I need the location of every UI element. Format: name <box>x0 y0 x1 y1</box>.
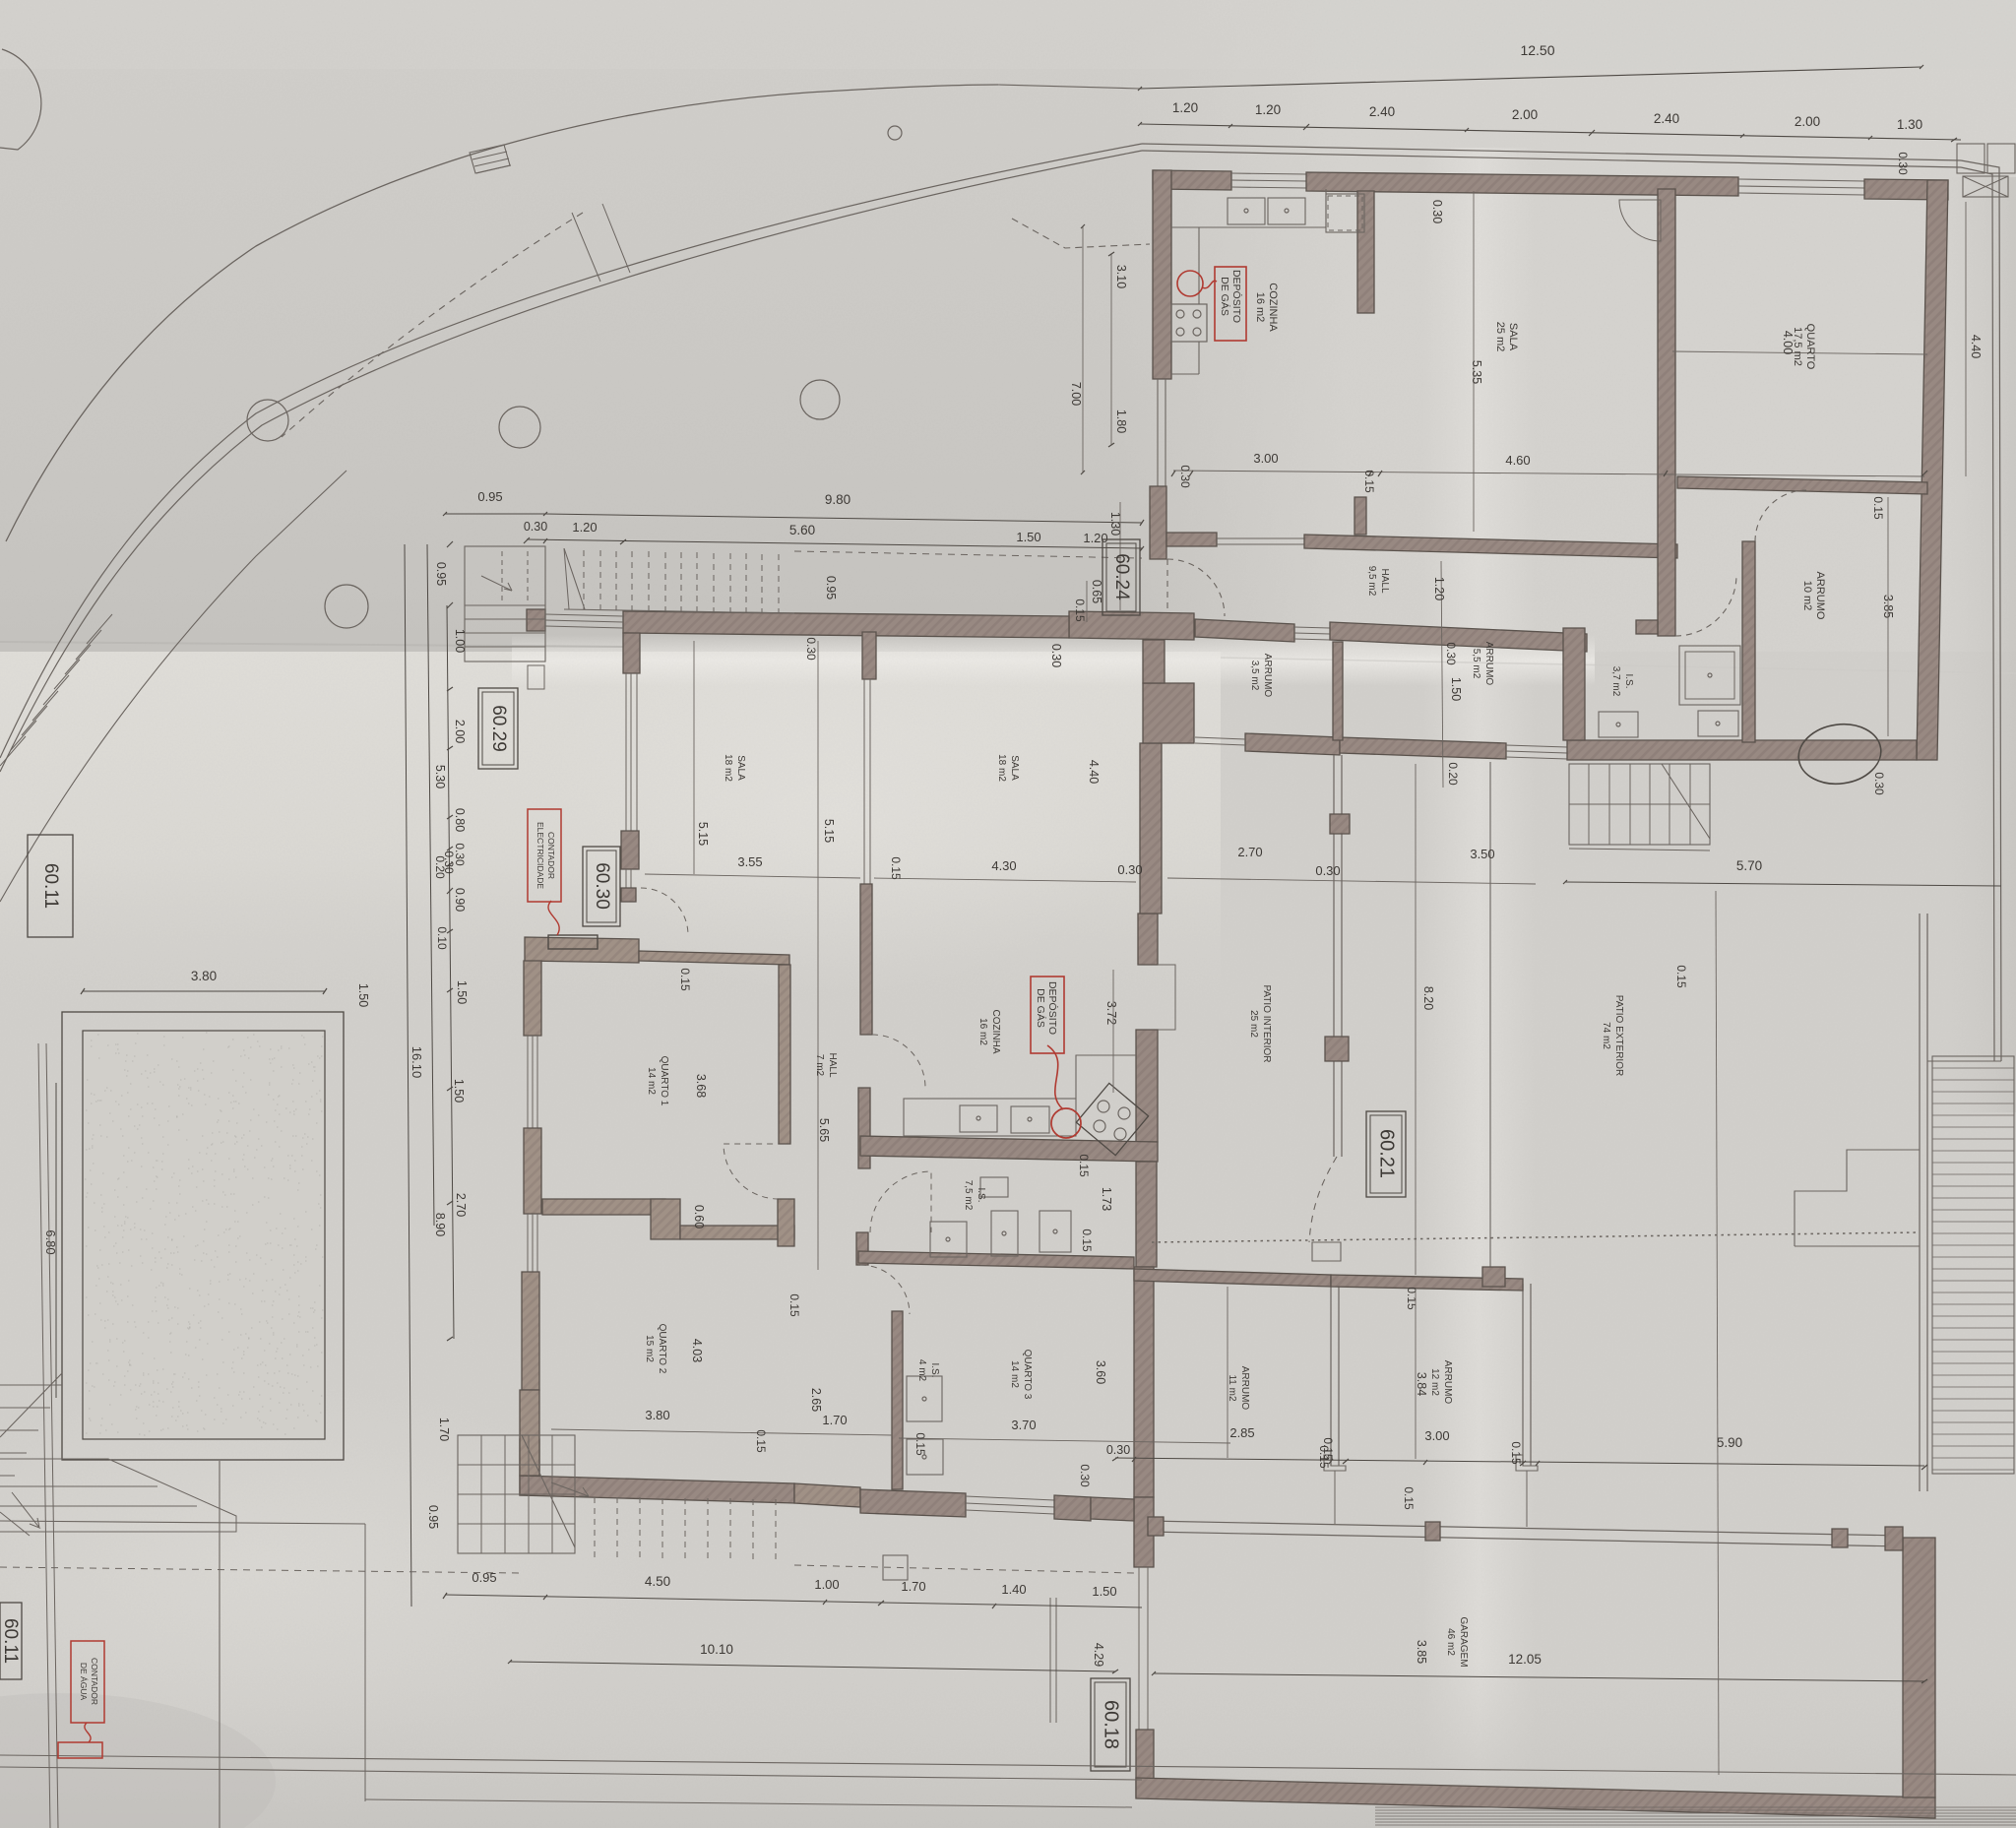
svg-text:2.00: 2.00 <box>453 720 467 743</box>
svg-text:10.10: 10.10 <box>700 1642 733 1657</box>
svg-text:0.95: 0.95 <box>477 489 502 504</box>
svg-text:0.30: 0.30 <box>1106 1443 1130 1457</box>
svg-text:9.80: 9.80 <box>825 492 850 507</box>
svg-text:4.29: 4.29 <box>1092 1643 1105 1667</box>
svg-text:1.20: 1.20 <box>1432 577 1446 600</box>
svg-text:8.90: 8.90 <box>433 1213 447 1236</box>
svg-text:1.70: 1.70 <box>822 1413 847 1427</box>
svg-text:5.65: 5.65 <box>817 1118 831 1142</box>
svg-text:2.65: 2.65 <box>809 1388 823 1412</box>
svg-text:2.00: 2.00 <box>1512 107 1538 122</box>
svg-text:0.15: 0.15 <box>754 1429 768 1453</box>
svg-text:0.95: 0.95 <box>434 562 448 586</box>
svg-text:0.90: 0.90 <box>453 888 467 912</box>
svg-text:3.80: 3.80 <box>645 1408 669 1422</box>
svg-text:0.30: 0.30 <box>1430 200 1444 223</box>
svg-text:3.60: 3.60 <box>1094 1360 1107 1384</box>
svg-text:0.30: 0.30 <box>1078 1464 1092 1487</box>
svg-text:60.30: 60.30 <box>592 862 612 910</box>
svg-text:0.15: 0.15 <box>1362 470 1376 493</box>
svg-text:1.73: 1.73 <box>1100 1187 1113 1211</box>
svg-text:3.80: 3.80 <box>191 969 217 983</box>
svg-text:0.15: 0.15 <box>1077 1154 1091 1177</box>
svg-text:5.15: 5.15 <box>822 819 836 843</box>
svg-text:1.50: 1.50 <box>452 1079 466 1103</box>
svg-text:1.30: 1.30 <box>1897 117 1922 132</box>
svg-text:3.55: 3.55 <box>737 854 762 869</box>
svg-text:60.29: 60.29 <box>488 705 509 752</box>
svg-text:0.95: 0.95 <box>426 1505 440 1529</box>
svg-text:8.20: 8.20 <box>1421 986 1435 1010</box>
svg-text:4.60: 4.60 <box>1505 453 1530 468</box>
svg-text:0.30: 0.30 <box>1117 862 1142 877</box>
svg-text:DEPÓSITODE GÁS: DEPÓSITODE GÁS <box>1219 270 1243 323</box>
svg-text:0.15: 0.15 <box>1674 965 1688 988</box>
svg-text:5.70: 5.70 <box>1736 858 1762 873</box>
svg-text:0.60: 0.60 <box>692 1205 706 1229</box>
svg-text:4.00: 4.00 <box>1781 331 1795 354</box>
svg-text:1.50: 1.50 <box>1092 1584 1116 1599</box>
svg-text:0.15: 0.15 <box>889 856 903 880</box>
svg-text:5.15: 5.15 <box>696 822 710 846</box>
svg-text:16.10: 16.10 <box>409 1046 424 1079</box>
svg-text:1.50: 1.50 <box>1016 530 1040 544</box>
svg-text:3.85: 3.85 <box>1415 1640 1428 1664</box>
svg-text:1.50: 1.50 <box>455 980 469 1004</box>
svg-text:2.70: 2.70 <box>1237 845 1262 859</box>
svg-text:1.50: 1.50 <box>1449 677 1463 701</box>
svg-text:1.70: 1.70 <box>437 1418 451 1441</box>
svg-text:0.15: 0.15 <box>913 1432 927 1456</box>
svg-text:4.30: 4.30 <box>991 858 1016 873</box>
svg-text:4.50: 4.50 <box>645 1574 670 1589</box>
svg-text:0.30: 0.30 <box>442 851 456 874</box>
svg-text:3.70: 3.70 <box>1011 1418 1036 1432</box>
svg-text:4.03: 4.03 <box>690 1339 704 1362</box>
svg-text:0.15: 0.15 <box>1317 1445 1331 1469</box>
svg-text:0.30: 0.30 <box>1178 465 1192 488</box>
svg-text:3.68: 3.68 <box>694 1074 708 1098</box>
svg-text:12.50: 12.50 <box>1520 42 1554 58</box>
svg-text:1.20: 1.20 <box>1083 531 1107 545</box>
svg-text:2.00: 2.00 <box>1795 114 1820 129</box>
svg-text:1.70: 1.70 <box>901 1579 925 1594</box>
svg-text:1.20: 1.20 <box>1255 102 1281 117</box>
svg-text:2.40: 2.40 <box>1369 104 1395 119</box>
svg-text:60.11: 60.11 <box>40 863 61 909</box>
svg-text:2.70: 2.70 <box>454 1193 468 1217</box>
svg-text:0.95: 0.95 <box>824 576 838 599</box>
svg-text:0.15: 0.15 <box>1405 1287 1418 1310</box>
svg-text:0.30: 0.30 <box>1444 642 1458 665</box>
svg-text:3.50: 3.50 <box>1470 847 1494 861</box>
svg-text:3.10: 3.10 <box>1114 265 1128 288</box>
svg-text:0.15: 0.15 <box>1073 599 1087 622</box>
svg-text:0.80: 0.80 <box>453 808 467 832</box>
svg-text:3.00: 3.00 <box>1253 451 1278 466</box>
svg-text:SALA25 m2: SALA25 m2 <box>1494 322 1519 352</box>
svg-text:1.50: 1.50 <box>356 983 370 1007</box>
svg-text:0.20: 0.20 <box>1446 762 1460 786</box>
svg-text:4.40: 4.40 <box>1969 335 1983 358</box>
svg-text:0.15: 0.15 <box>1871 496 1885 520</box>
svg-text:5.35: 5.35 <box>1470 360 1483 384</box>
svg-text:60.21: 60.21 <box>1376 1129 1398 1178</box>
svg-text:CONTADORDE ÁGUA: CONTADORDE ÁGUA <box>79 1658 99 1705</box>
svg-text:60.24: 60.24 <box>1111 553 1132 600</box>
svg-text:3.84: 3.84 <box>1415 1372 1428 1396</box>
svg-text:0.15: 0.15 <box>1509 1441 1523 1465</box>
svg-text:1.00: 1.00 <box>453 629 467 653</box>
svg-text:0.30: 0.30 <box>1872 772 1886 795</box>
svg-text:6.80: 6.80 <box>43 1229 58 1254</box>
svg-text:3.72: 3.72 <box>1104 1001 1118 1025</box>
svg-text:0.30: 0.30 <box>804 637 818 661</box>
svg-text:12.05: 12.05 <box>1508 1652 1542 1667</box>
svg-text:5.60: 5.60 <box>789 523 815 537</box>
svg-text:3.00: 3.00 <box>1424 1428 1449 1443</box>
svg-text:0.15: 0.15 <box>787 1293 801 1317</box>
svg-text:60.18: 60.18 <box>1101 1700 1122 1749</box>
svg-text:4.40: 4.40 <box>1087 760 1101 784</box>
svg-text:0.95: 0.95 <box>472 1570 496 1585</box>
svg-text:0.65: 0.65 <box>1090 580 1103 603</box>
svg-text:0.30: 0.30 <box>1315 863 1340 878</box>
svg-text:2.85: 2.85 <box>1229 1425 1254 1440</box>
svg-text:5.90: 5.90 <box>1717 1435 1742 1450</box>
svg-text:DEPÓSITODE GÁS: DEPÓSITODE GÁS <box>1035 981 1059 1035</box>
svg-text:5.30: 5.30 <box>433 765 447 788</box>
svg-text:0.15: 0.15 <box>678 968 692 991</box>
svg-text:1.40: 1.40 <box>1001 1582 1026 1597</box>
svg-text:0.15: 0.15 <box>1080 1229 1094 1252</box>
svg-text:1.20: 1.20 <box>572 520 597 535</box>
svg-text:60.11: 60.11 <box>0 1618 21 1664</box>
svg-text:1.80: 1.80 <box>1114 410 1128 433</box>
svg-text:0.30: 0.30 <box>1049 644 1063 667</box>
svg-text:0.30: 0.30 <box>524 520 547 534</box>
svg-text:1.20: 1.20 <box>1172 100 1198 115</box>
svg-text:0.15: 0.15 <box>1402 1486 1416 1510</box>
svg-text:0.10: 0.10 <box>435 926 449 950</box>
svg-text:1.00: 1.00 <box>814 1577 839 1592</box>
svg-text:0.30: 0.30 <box>1896 152 1910 175</box>
svg-text:2.40: 2.40 <box>1654 111 1679 126</box>
svg-text:7.00: 7.00 <box>1069 382 1083 406</box>
